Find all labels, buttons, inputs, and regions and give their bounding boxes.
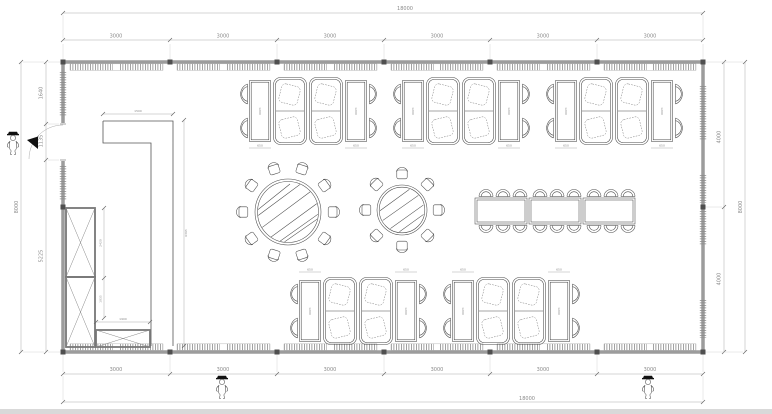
dim-label: 650 bbox=[506, 144, 512, 148]
dim-label-cabinet-lower: 1035 bbox=[99, 295, 103, 303]
counter: 1500 6365 bbox=[101, 109, 188, 348]
person-bottom-right-icon bbox=[642, 376, 654, 399]
dim-label: 3000 bbox=[324, 34, 337, 40]
round-table-large-chairs bbox=[236, 161, 339, 263]
cabinet: 2420 1035 1900 bbox=[66, 206, 152, 347]
dim-label: 3000 bbox=[431, 34, 444, 40]
dim-label-cabinet-base: 1900 bbox=[119, 317, 127, 321]
dim-label-top-overall: 18000 bbox=[397, 6, 413, 12]
entry-door bbox=[27, 123, 67, 161]
banquet-chairs-bottom bbox=[479, 226, 635, 233]
banquet-chairs-top bbox=[479, 190, 635, 197]
floor-plan-canvas: 1200 18000 3000 3000 bbox=[0, 0, 772, 414]
dim-label: 650 bbox=[659, 144, 665, 148]
dimension-bottom: 3000 3000 3000 3000 3000 3000 18000 bbox=[61, 354, 705, 404]
dim-label: 3000 bbox=[644, 367, 657, 373]
round-table-large bbox=[236, 161, 339, 263]
dim-label: 650 bbox=[556, 268, 562, 272]
dim-label: 4000 bbox=[717, 131, 723, 144]
dim-label: 1640 bbox=[39, 87, 45, 100]
dim-label: 3000 bbox=[537, 367, 550, 373]
dim-label: 650 bbox=[563, 144, 569, 148]
dim-label: 5225 bbox=[39, 250, 45, 263]
door-leaf-icon bbox=[27, 137, 38, 150]
dim-label: 4000 bbox=[717, 273, 723, 286]
exterior-wall bbox=[63, 62, 703, 352]
dim-label: 3000 bbox=[217, 34, 230, 40]
dim-label: 650 bbox=[403, 268, 409, 272]
dim-label: 3000 bbox=[431, 367, 444, 373]
columns bbox=[61, 60, 706, 355]
window-strip-bottom bbox=[70, 344, 696, 351]
dimension-top: 18000 3000 3000 3000 3000 3000 3000 bbox=[61, 6, 705, 60]
person-bottom-left-icon bbox=[216, 376, 228, 399]
dim-label: 650 bbox=[353, 144, 359, 148]
round-table-small-chairs bbox=[359, 167, 444, 252]
dim-label: 3000 bbox=[644, 34, 657, 40]
dim-label-left-overall: 8000 bbox=[14, 201, 20, 214]
dim-label-cabinet-upper: 2420 bbox=[99, 239, 103, 247]
dim-label: 3000 bbox=[110, 367, 123, 373]
dim-label: 650 bbox=[460, 268, 466, 272]
bottom-edge-strip bbox=[0, 409, 772, 414]
dim-label-right-overall: 8000 bbox=[738, 201, 744, 214]
booth-clusters-top: 650 650 650 650 650 650 bbox=[241, 78, 683, 149]
dim-label: 650 bbox=[307, 268, 313, 272]
booth-clusters-bottom: 650 650 650 650 bbox=[291, 268, 580, 345]
dim-label: 3000 bbox=[324, 367, 337, 373]
dim-label: 3000 bbox=[537, 34, 550, 40]
dimension-left: 8000 1640 1135 5225 bbox=[14, 60, 60, 354]
dimension-right: 4000 4000 8000 bbox=[705, 60, 747, 354]
dim-label: 650 bbox=[410, 144, 416, 148]
dim-label: 3000 bbox=[217, 367, 230, 373]
dim-label-bottom-overall: 18000 bbox=[519, 396, 535, 402]
dim-label: 1135 bbox=[39, 135, 45, 148]
person-at-door-icon bbox=[7, 132, 19, 155]
dim-label-counter-width: 1500 bbox=[134, 109, 142, 113]
banquet-table-group bbox=[475, 190, 635, 233]
round-table-small bbox=[359, 167, 444, 252]
dim-label: 3000 bbox=[110, 34, 123, 40]
dim-label-counter-length: 6365 bbox=[184, 229, 188, 237]
floor-plan-drawing: 1200 18000 3000 3000 bbox=[0, 0, 772, 414]
table-top-hatch bbox=[370, 186, 438, 240]
window-strip-top bbox=[70, 64, 696, 71]
dim-label: 650 bbox=[257, 144, 263, 148]
